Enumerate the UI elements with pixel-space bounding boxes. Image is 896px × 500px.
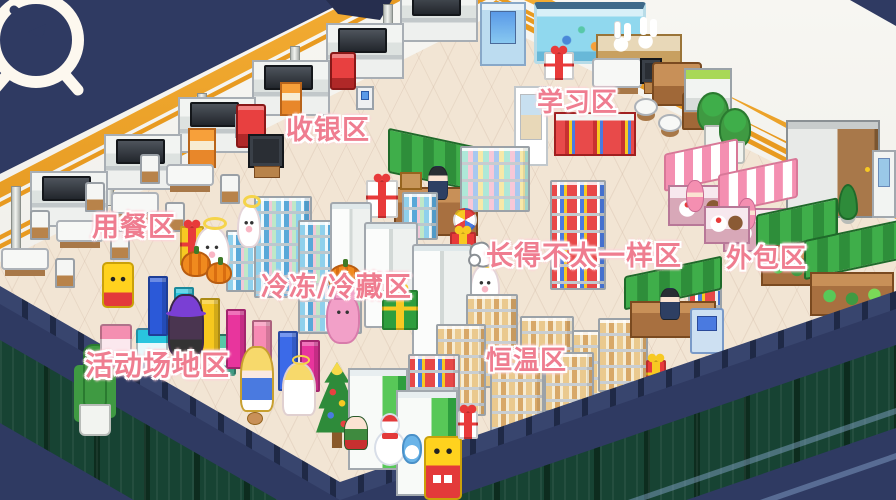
penguin-toy xyxy=(402,434,422,464)
time-forward-button[interactable] xyxy=(0,0,116,110)
gift-box-white xyxy=(544,52,574,80)
game-viewport: 收银区 学习区 用餐区 冷冻/冷藏区 长得不太一样区 外包区 活动场地区 恒温区 xyxy=(0,0,896,500)
dining-set xyxy=(0,232,75,290)
zone-label-study: 学习区 xyxy=(537,82,618,119)
angel-girl xyxy=(282,362,316,416)
customer-pink xyxy=(686,180,704,212)
tv-set xyxy=(248,134,284,168)
round-table xyxy=(658,114,682,132)
kiosk-clerk xyxy=(660,288,680,320)
zone-label-thermostat: 恒温区 xyxy=(486,340,567,377)
yellow-robot-mascot xyxy=(424,436,462,500)
chair xyxy=(55,258,75,288)
round-table xyxy=(634,98,658,116)
zone-label-different: 长得不太一样区 xyxy=(486,234,682,273)
blonde-girl xyxy=(240,346,274,412)
pumpkin xyxy=(206,262,232,284)
dining-table xyxy=(1,248,49,270)
color-panel xyxy=(148,276,168,336)
cash-register xyxy=(356,86,374,110)
gift-box xyxy=(458,411,478,439)
cashier-counter xyxy=(400,0,478,42)
zone-label-frozen: 冷冻/冷藏区 xyxy=(261,265,412,304)
zone-label-dining: 用餐区 xyxy=(92,205,176,244)
pastel-goods-shelf xyxy=(460,146,530,212)
alarm-clock-forward-icon xyxy=(0,0,116,110)
elf-child xyxy=(344,416,368,450)
red-vending-machine xyxy=(330,52,356,90)
zone-label-activity: 活动场地区 xyxy=(85,344,230,384)
yellow-mascot xyxy=(102,262,134,308)
zone-label-cashier: 收银区 xyxy=(286,108,370,147)
chair xyxy=(220,174,240,204)
display-machine xyxy=(480,2,526,66)
hamster xyxy=(247,412,263,425)
atm-machine xyxy=(690,308,724,354)
white-vending-machine xyxy=(872,150,896,218)
ghost-spirit xyxy=(237,204,261,248)
zone-label-outsourced: 外包区 xyxy=(726,238,807,275)
cardboard-box xyxy=(400,172,422,190)
